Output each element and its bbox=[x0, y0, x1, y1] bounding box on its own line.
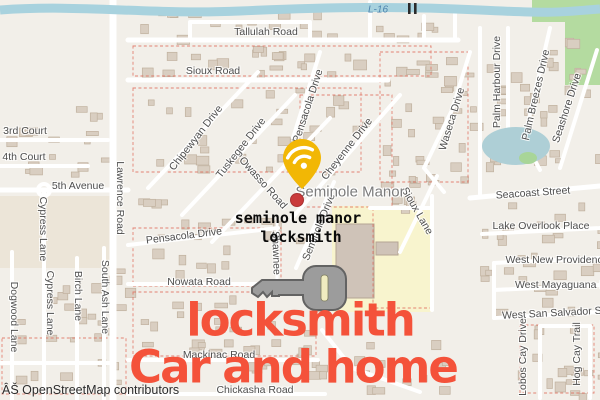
osm-attribution-link[interactable]: ÂŠ OpenStreetMap contributors bbox=[2, 383, 179, 397]
query-text-line2: locksmith bbox=[260, 228, 341, 246]
headline-line1: locksmith bbox=[186, 294, 414, 347]
location-pin-icon[interactable] bbox=[282, 138, 322, 190]
waterway-label: L-16 bbox=[368, 5, 388, 16]
school-building bbox=[376, 242, 398, 255]
query-text-line1: seminole manor bbox=[235, 209, 361, 227]
open-field bbox=[0, 196, 112, 268]
pond bbox=[482, 127, 550, 165]
pond-island bbox=[519, 152, 537, 164]
location-dot bbox=[290, 193, 304, 207]
map-canvas[interactable]: Tallulah RoadSioux Road3rd Court4th Cour… bbox=[0, 0, 600, 400]
